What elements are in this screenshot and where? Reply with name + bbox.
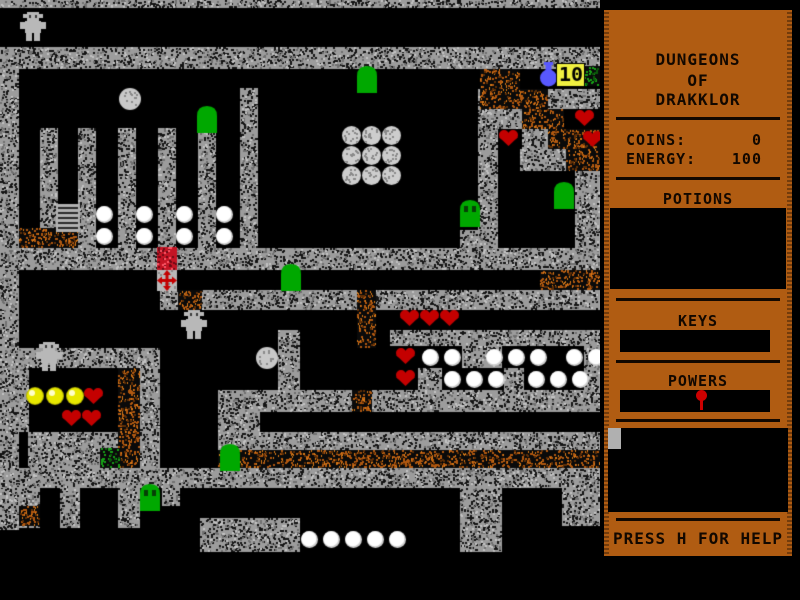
game-screen: DUNGEONS OF DRAKKLOR COINS: 0 ENERGY: 10…: [0, 0, 800, 600]
potions-inventory-box: [610, 208, 786, 289]
keys-section-label: KEYS: [604, 312, 792, 330]
energy-stat: ENERGY: 100: [626, 150, 762, 168]
divider: [616, 360, 780, 363]
divider: [616, 177, 780, 180]
keys-inventory-box: [620, 330, 770, 352]
divider: [616, 117, 780, 120]
powers-inventory-box: [620, 390, 770, 412]
energy-value: 100: [732, 150, 762, 168]
sidebar: DUNGEONS OF DRAKKLOR COINS: 0 ENERGY: 10…: [604, 10, 792, 556]
powers-section-label: POWERS: [604, 372, 792, 390]
coins-label: COINS:: [626, 131, 686, 149]
game-title-line-2: OF: [604, 71, 792, 90]
help-text: PRESS H FOR HELP: [604, 529, 792, 548]
message-box: [608, 428, 788, 512]
game-title-line-3: DRAKKLOR: [604, 90, 792, 109]
divider: [616, 518, 780, 521]
game-title-line-1: DUNGEONS: [604, 50, 792, 69]
power-pin-icon: [696, 390, 707, 401]
divider: [616, 419, 780, 422]
coins-stat: COINS: 0: [626, 131, 762, 149]
coins-value: 0: [752, 131, 762, 149]
potions-section-label: POTIONS: [604, 190, 792, 208]
energy-label: ENERGY:: [626, 150, 696, 168]
message-cursor-block: [608, 428, 621, 449]
game-map[interactable]: [0, 0, 600, 556]
divider: [616, 298, 780, 301]
